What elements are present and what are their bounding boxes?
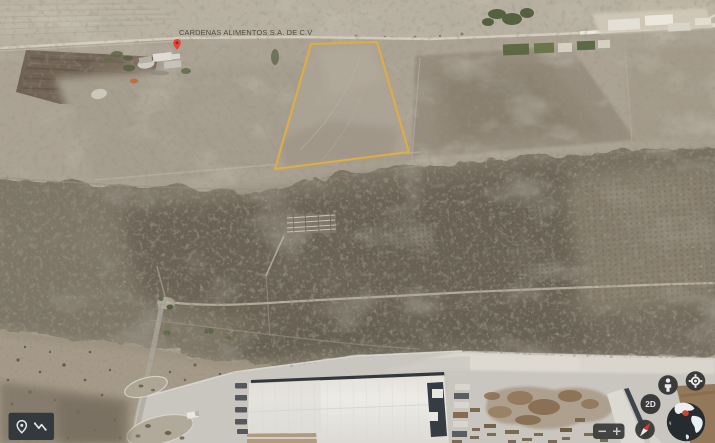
svg-text:CARDENAS ALIMENTOS S.A. DE C.V: CARDENAS ALIMENTOS S.A. DE C.V bbox=[179, 28, 312, 37]
svg-text:2D: 2D bbox=[645, 400, 656, 409]
